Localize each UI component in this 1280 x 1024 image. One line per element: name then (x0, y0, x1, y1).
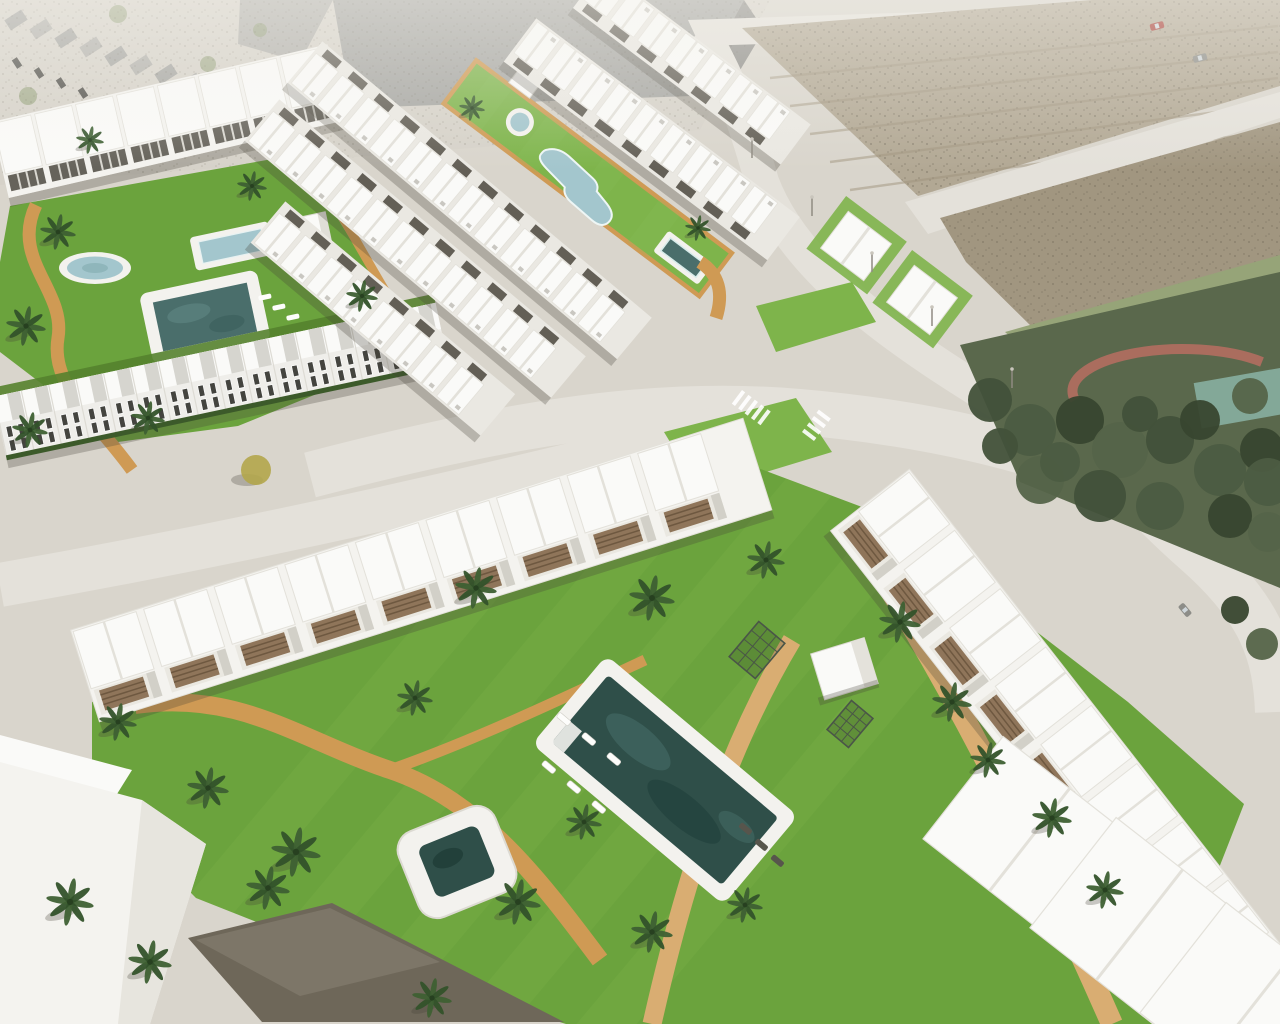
aerial-render (0, 0, 1280, 1024)
haze-overlay (0, 0, 1280, 170)
aerial-render-stage (0, 0, 1280, 1024)
